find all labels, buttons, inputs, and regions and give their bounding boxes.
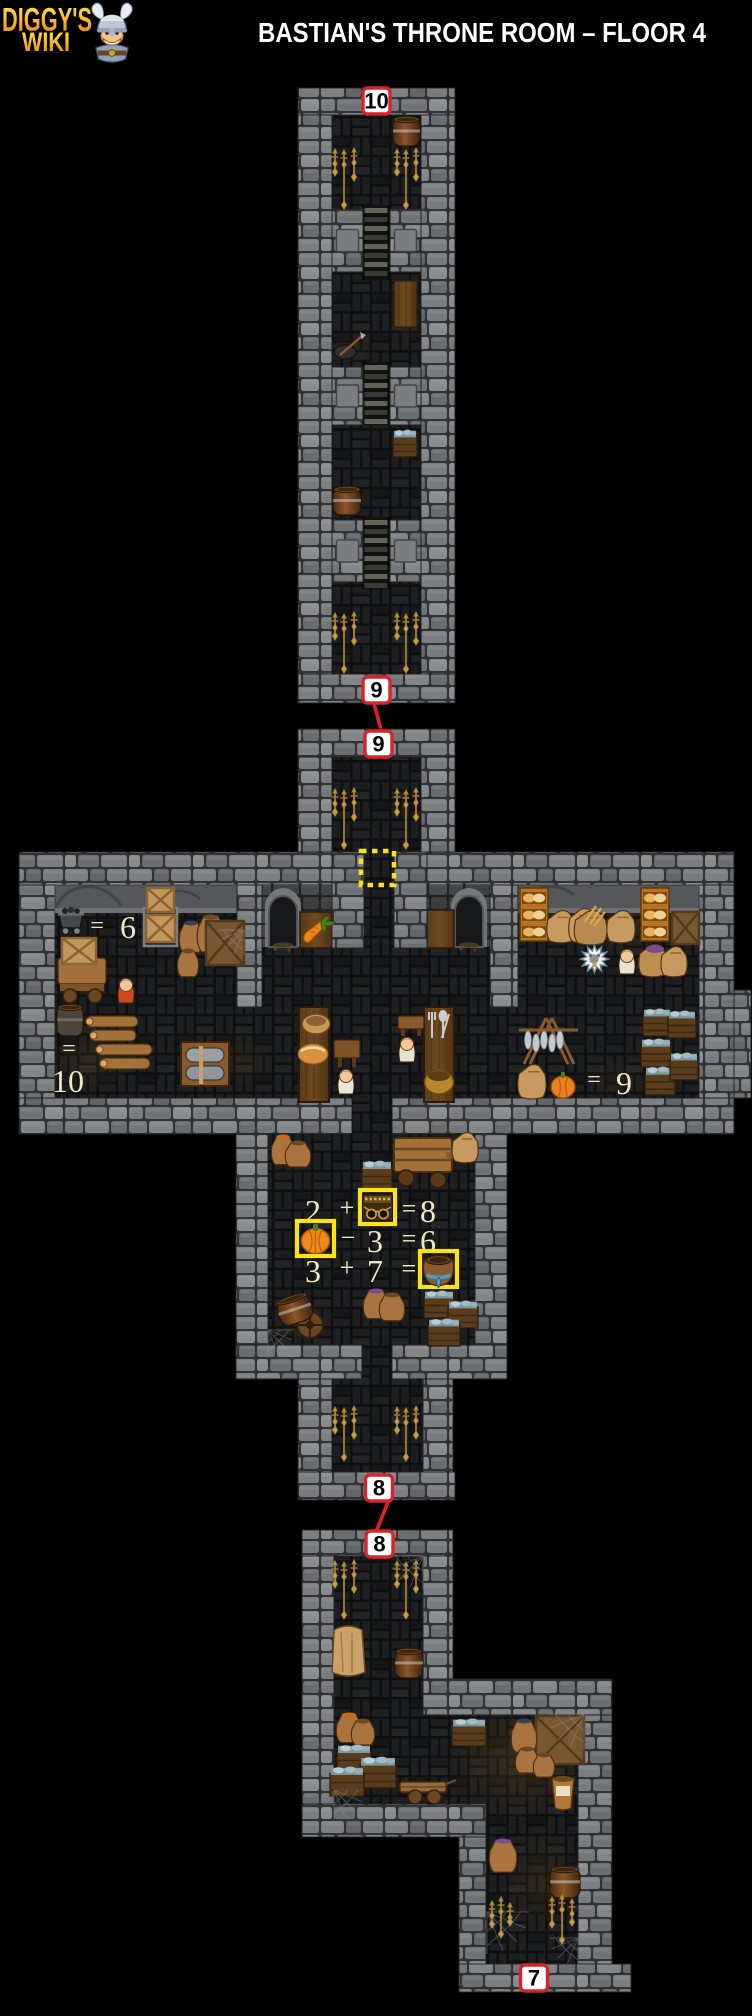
svg-text:6: 6 [120, 909, 136, 945]
svg-text:3: 3 [305, 1253, 321, 1289]
svg-text:8: 8 [373, 1476, 385, 1501]
svg-text:10: 10 [52, 1063, 84, 1099]
svg-text:8: 8 [373, 1532, 385, 1557]
svg-text:+: + [340, 1193, 355, 1222]
svg-text:9: 9 [370, 678, 382, 703]
svg-text:BASTIAN'S THRONE ROOM – FLOOR: BASTIAN'S THRONE ROOM – FLOOR 4 [258, 17, 706, 48]
svg-text:=: = [402, 1254, 417, 1283]
svg-text:−: − [341, 1223, 356, 1252]
svg-text:+: + [340, 1253, 355, 1282]
svg-text:7: 7 [367, 1253, 383, 1289]
svg-text:7: 7 [528, 1966, 540, 1991]
svg-text:WIKI: WIKI [22, 27, 70, 57]
svg-text:2: 2 [305, 1193, 321, 1229]
svg-text:=: = [402, 1224, 417, 1253]
svg-text:10: 10 [364, 89, 388, 114]
svg-text:=: = [402, 1194, 417, 1223]
svg-text:=: = [587, 1067, 601, 1093]
svg-text:9: 9 [616, 1065, 632, 1101]
svg-text:6: 6 [420, 1223, 436, 1259]
svg-text:=: = [62, 1036, 76, 1062]
svg-text:=: = [90, 913, 104, 939]
svg-text:9: 9 [372, 732, 384, 757]
